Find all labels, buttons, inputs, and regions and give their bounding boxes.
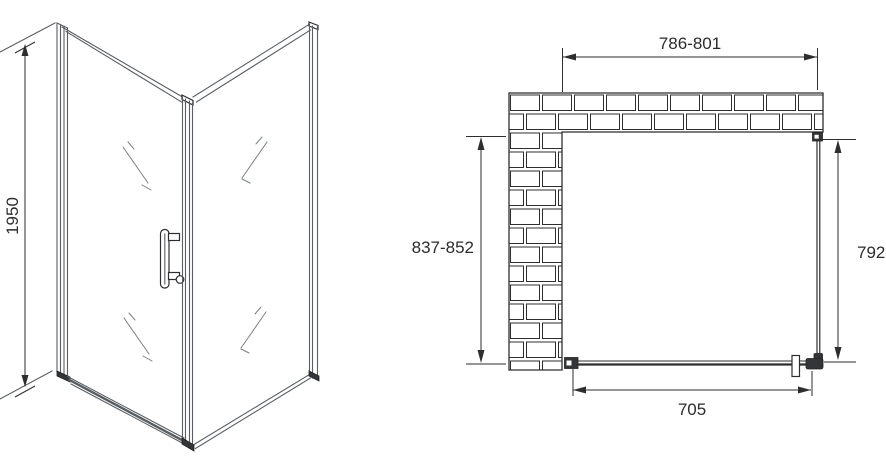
dim-arrow-up-icon bbox=[835, 140, 842, 153]
left-wall-profile bbox=[57, 23, 70, 382]
door-width-dimension: 705 bbox=[573, 369, 812, 419]
right-post bbox=[309, 22, 319, 381]
dim-arrow-left-icon bbox=[563, 54, 576, 61]
drawing-canvas: 1950 bbox=[0, 0, 886, 461]
dim-arrow-right-icon bbox=[798, 387, 811, 394]
height-dimension: 1950 bbox=[3, 42, 35, 397]
dim-arrow-down-icon bbox=[478, 350, 485, 363]
door-plan bbox=[578, 361, 809, 365]
side-view: 1950 bbox=[0, 22, 319, 451]
right-panel-dimension: 792 bbox=[822, 140, 885, 363]
door-width-dimension-label: 705 bbox=[678, 400, 706, 419]
dim-arrow-left-icon bbox=[573, 387, 586, 394]
glass-panel-plan bbox=[817, 141, 820, 361]
height-dimension-label: 1950 bbox=[3, 197, 22, 235]
left-depth-dimension: 837-852 bbox=[412, 137, 506, 365]
side-panel bbox=[193, 25, 311, 449]
door-handle-plan bbox=[792, 356, 800, 377]
dim-arrow-down-icon bbox=[835, 347, 842, 360]
glass-hatch-panel-lower bbox=[241, 307, 266, 353]
glass-hatch-door-lower bbox=[124, 313, 152, 361]
brick-wall bbox=[509, 93, 823, 370]
glass-hatch-panel-upper bbox=[242, 137, 267, 183]
dim-arrow-down-icon bbox=[22, 375, 29, 387]
corner-block-plan bbox=[806, 354, 823, 370]
shower-enclosure-dimension-drawing: 1950 bbox=[0, 0, 886, 461]
right-panel-dimension-label: 792 bbox=[857, 243, 885, 262]
top-width-dimension-label: 786-801 bbox=[659, 34, 721, 53]
dim-arrow-up-icon bbox=[478, 137, 485, 150]
plan-view: 786-801 837-852 792 705 bbox=[412, 34, 886, 419]
center-post bbox=[182, 95, 194, 451]
hinge-plan bbox=[565, 358, 579, 369]
wall-profile-plan bbox=[813, 133, 823, 142]
glass-hatch-door-upper bbox=[123, 142, 151, 190]
dim-arrow-right-icon bbox=[804, 54, 817, 61]
door-handle-3d bbox=[161, 230, 184, 289]
top-width-dimension: 786-801 bbox=[563, 34, 818, 92]
left-depth-dimension-label: 837-852 bbox=[412, 238, 474, 257]
